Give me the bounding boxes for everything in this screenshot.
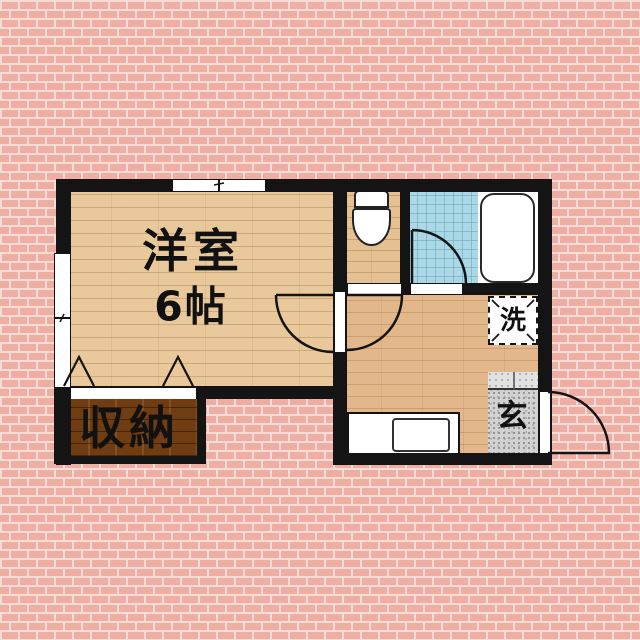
main-room-door-opening xyxy=(334,291,346,353)
washer-label: 洗 xyxy=(500,308,526,334)
toilet-tank-icon xyxy=(354,190,389,208)
kitchen-sink-icon xyxy=(392,418,450,452)
genkan-step xyxy=(488,372,538,390)
bathroom-tile-floor xyxy=(408,188,480,295)
floorplan-page: { "floorplan": { "rooms": { "western_roo… xyxy=(0,0,640,640)
entrance-label: 玄 xyxy=(497,402,528,433)
window-top xyxy=(172,179,266,192)
wall-toilet-bath-divider xyxy=(400,186,410,295)
closet-door-track xyxy=(61,388,197,399)
wall-top xyxy=(56,179,552,192)
western-room-size-label: 6帖 xyxy=(154,287,228,328)
entrance-door-arc xyxy=(548,392,609,453)
wall-main-room-bottom xyxy=(196,386,337,399)
western-room-name-label: 洋室 xyxy=(142,228,244,274)
bathtub-icon xyxy=(480,193,535,283)
toilet-door-opening xyxy=(348,284,401,294)
wall-bottom-right-block xyxy=(333,453,552,465)
bathroom-door-opening xyxy=(411,284,462,294)
closet-label: 収納 xyxy=(79,405,179,451)
entrance-door-opening xyxy=(539,391,551,454)
window-left xyxy=(54,253,71,388)
